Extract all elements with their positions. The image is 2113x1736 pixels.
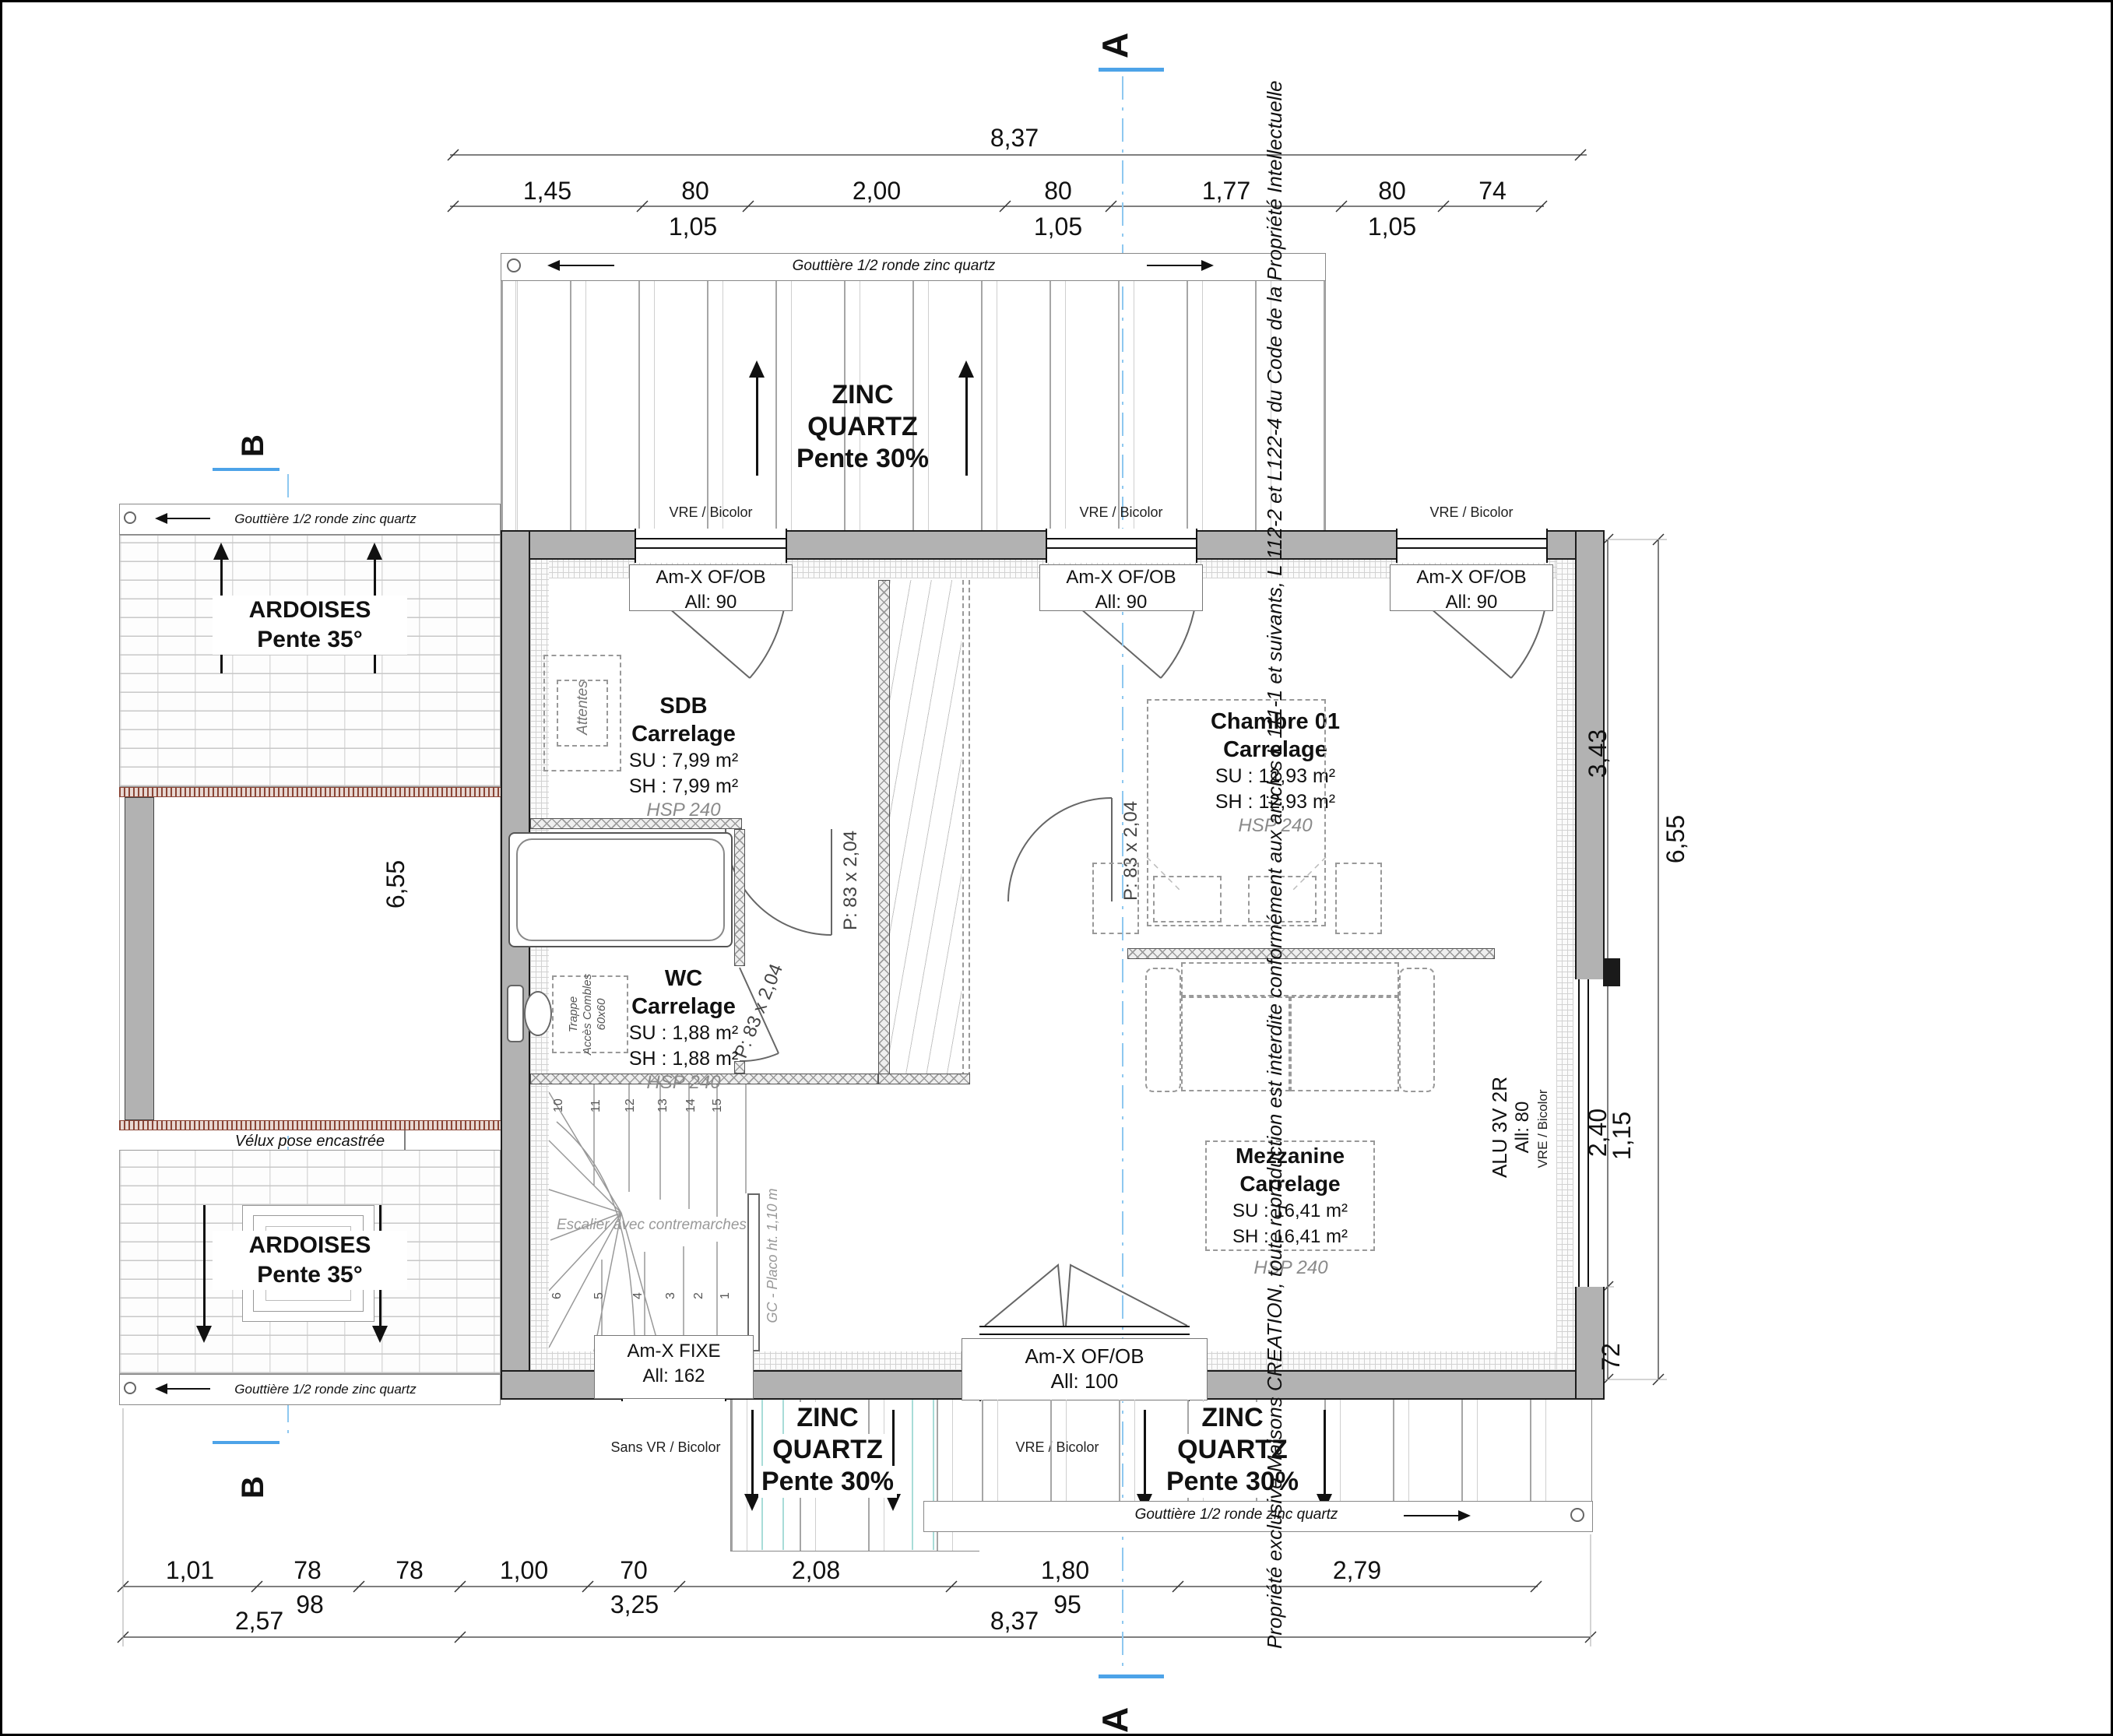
window-north-3-label: Am-X OF/OB All: 90	[1390, 564, 1553, 611]
bl-roof-label-3: Pente 30%	[758, 1466, 897, 1498]
window-north-1-note: VRE / Bicolor	[649, 504, 773, 521]
ardoises-top-label: ARDOISES Pente 35°	[213, 596, 407, 655]
roof-gap-wall-band	[125, 797, 154, 1120]
dim-bot-sub-2: 3,25	[592, 1590, 677, 1619]
window-south-ofob-label: Am-X OF/OB All: 100	[962, 1338, 1208, 1400]
left-gutter-bottom-circle	[124, 1382, 136, 1394]
window-south-ofob-frame1	[979, 1326, 1190, 1327]
window-north-3	[1396, 529, 1548, 563]
top-gutter-endcircle	[507, 258, 521, 272]
window-north-2	[1046, 529, 1197, 563]
dim-bot2-1: 2,57	[213, 1607, 306, 1636]
room-sdb-finish: Carrelage	[598, 720, 769, 748]
closet-east-line	[962, 580, 970, 1084]
toilet-tank	[507, 985, 524, 1042]
window-north-3-note: VRE / Bicolor	[1409, 504, 1534, 521]
section-b-bottom-label: B	[236, 1455, 280, 1499]
bl-roof-label-1: ZINC	[793, 1402, 861, 1434]
room-sdb-sh: SH : 7,99 m²	[598, 774, 769, 799]
top-roof-label: ZINC QUARTZ Pente 30%	[777, 379, 948, 475]
dim-top-sub-3: 1,05	[1349, 213, 1435, 241]
window-north-3-line	[1398, 538, 1546, 539]
sofa-back	[1181, 962, 1399, 996]
attentes-label: Attentes	[575, 649, 593, 766]
window-north-3-sill: All: 90	[1391, 590, 1552, 615]
section-b-bottom-mark	[213, 1441, 280, 1444]
dim-top-1: 1,45	[505, 177, 590, 206]
window-ofob100-type: Am-X OF/OB	[962, 1344, 1207, 1369]
window-north-3-type: Am-X OF/OB	[1391, 565, 1552, 590]
sofa-cushion-right	[1290, 996, 1399, 1091]
nightstand-left	[1092, 863, 1139, 934]
window-north-2-line2	[1047, 547, 1196, 549]
ardoises-bottom-label-1: ARDOISES	[213, 1231, 407, 1260]
ardoises-bottom-arrow1-line	[203, 1205, 206, 1328]
window-north-1	[635, 529, 787, 563]
step-15: 15	[711, 1089, 725, 1112]
closet-shelving	[890, 580, 962, 1084]
window-north-1-line2	[636, 547, 786, 549]
ridge-strip-upper	[119, 787, 501, 797]
step-12: 12	[624, 1089, 638, 1112]
bl-roof-label: ZINC QUARTZ Pente 30%	[742, 1402, 913, 1498]
dim-bot-4: 1,00	[481, 1556, 567, 1585]
dim-right-72: 72	[1597, 1326, 1619, 1388]
section-b-top-label: B	[236, 413, 280, 457]
window-fixe-type: Am-X FIXE	[595, 1339, 753, 1364]
top-roof-label-1: ZINC	[777, 379, 948, 411]
window-ofob100-sill: All: 100	[962, 1369, 1207, 1393]
dim-top-total: 8,37	[968, 124, 1061, 153]
velux-label: Vélux pose encastrée	[181, 1133, 438, 1151]
sofa-arm-right	[1399, 968, 1435, 1092]
ridge-strip-lower	[119, 1120, 501, 1130]
room-wc-sh: SH : 1,88 m²	[598, 1046, 769, 1072]
partition-chambre-south	[1127, 948, 1495, 959]
top-gutter-arrow-right-line	[1147, 265, 1201, 266]
step-13: 13	[656, 1089, 670, 1112]
bed-pillow-left	[1153, 876, 1222, 922]
bottom-gutter-arrow-line	[1404, 1515, 1458, 1516]
section-a-top-label: A	[1094, 12, 1141, 58]
dim-bot-1: 1,01	[147, 1556, 233, 1585]
floor-plan-canvas: A A B B 8,37 1,45 80 2,00 80 1,77 80 74 …	[0, 0, 2113, 1736]
top-gutter-label: Gouttière 1/2 ronde zinc quartz	[742, 258, 1046, 275]
br-roof-arrow1-line	[1144, 1410, 1146, 1495]
step-11: 11	[589, 1089, 603, 1112]
dim-bot-6: 2,08	[773, 1556, 859, 1585]
step-6: 6	[550, 1276, 564, 1299]
stair-gc-label: GC - Placo ht. 1,10 m	[765, 1178, 782, 1334]
bottom-gutter-arrow-icon	[1458, 1510, 1471, 1521]
window-south-ofob-frame2	[979, 1334, 1190, 1335]
bl-roof-label-2: QUARTZ	[769, 1434, 886, 1466]
door-label-sdb: P: 83 x 2,04	[840, 814, 862, 947]
toilet-bowl	[524, 991, 552, 1036]
window-north-1-sill: All: 90	[630, 590, 792, 615]
window-fixe-note: Sans VR / Bicolor	[588, 1439, 744, 1456]
window-north-1-type: Am-X OF/OB	[630, 565, 792, 590]
partition-wc-east	[734, 829, 745, 966]
dim-top-sub-1: 1,05	[650, 213, 736, 241]
room-mezzanine-label: Mezzanine Carrelage SU : 16,41 m² SH : 1…	[1205, 1140, 1375, 1251]
top-gutter-arrow-right-icon	[1201, 260, 1214, 271]
dim-right-115: 1,15	[1608, 1097, 1630, 1175]
section-a-bottom-label: A	[1094, 1686, 1141, 1733]
step-3: 3	[664, 1276, 678, 1299]
room-wc-finish: Carrelage	[598, 993, 769, 1021]
room-mezz-sh: SH : 16,41 m²	[1207, 1224, 1373, 1249]
dim-top-5: 1,77	[1183, 177, 1269, 206]
room-wc-su: SU : 1,88 m²	[598, 1021, 769, 1046]
dim-right-343: 3,43	[1584, 711, 1607, 796]
br-roof-label: ZINC QUARTZ Pente 30%	[1147, 1402, 1318, 1498]
bathtub-inner	[516, 838, 725, 941]
dim-right-240: 2,40	[1584, 1090, 1607, 1175]
room-wc-name: WC	[598, 965, 769, 993]
dim-bot-5: 70	[591, 1556, 677, 1585]
dim-top-6: 80	[1349, 177, 1435, 206]
top-roof-arrow1-icon	[749, 360, 765, 378]
ardoises-roof-top	[119, 535, 501, 787]
ardoises-top-arrow1-icon	[213, 543, 229, 560]
dim-top-2: 80	[652, 177, 738, 206]
dim-top-7: 74	[1450, 177, 1535, 206]
ardoises-top-label-1: ARDOISES	[213, 596, 407, 625]
step-2: 2	[692, 1276, 706, 1299]
room-sdb-label: SDB Carrelage SU : 7,99 m² SH : 7,99 m² …	[598, 692, 769, 821]
partition-closet-south	[878, 1074, 970, 1084]
room-sdb-su: SU : 7,99 m²	[598, 748, 769, 774]
stair-label: Escalier avec contremarches	[557, 1217, 736, 1234]
bottom-gutter-label: Gouttière 1/2 ronde zinc quartz	[1085, 1506, 1388, 1523]
window-north-2-line	[1047, 538, 1196, 539]
window-north-1-label: Am-X OF/OB All: 90	[629, 564, 793, 611]
dim-top-3: 2,00	[834, 177, 919, 206]
room-wc-label: WC Carrelage SU : 1,88 m² SH : 1,88 m² H…	[598, 965, 769, 1094]
window-south-fixe-label: Am-X FIXE All: 162	[594, 1335, 754, 1399]
dim-bot-2: 78	[265, 1556, 350, 1585]
dim-bot2-2: 8,37	[968, 1607, 1061, 1636]
east-wall-post	[1603, 958, 1620, 986]
br-roof-arrow2-line	[1324, 1410, 1326, 1495]
room-mezz-hsp: HSP 240	[1221, 1257, 1361, 1279]
top-roof-label-2: QUARTZ	[777, 411, 948, 443]
step-1: 1	[719, 1276, 733, 1299]
dim-bot-7: 1,80	[1022, 1556, 1108, 1585]
step-14: 14	[684, 1089, 698, 1112]
step-10: 10	[552, 1089, 566, 1112]
dim-top-4: 80	[1015, 177, 1101, 206]
window-east-sill: All: 80	[1510, 1065, 1531, 1190]
left-gutter-top-label: Gouttière 1/2 ronde zinc quartz	[205, 511, 446, 527]
window-east-note: VRE / Bicolor	[1535, 1063, 1552, 1195]
room-sdb-hsp: HSP 240	[598, 799, 769, 821]
dim-left-655: 6,55	[381, 842, 405, 927]
window-east-type: ALU 3V 2R	[1487, 1049, 1510, 1205]
ardoises-bottom-label: ARDOISES Pente 35°	[213, 1231, 407, 1290]
copyright-text: Propriété exclusive Maisons CREATION, to…	[1263, 92, 1289, 1649]
step-4: 4	[631, 1276, 645, 1299]
ardoises-top-label-2: Pente 35°	[213, 625, 407, 655]
dim-right-655: 6,55	[1661, 796, 1685, 882]
trappe-label-2: Accès Combles	[581, 948, 595, 1081]
window-north-2-note: VRE / Bicolor	[1059, 504, 1183, 521]
left-gutter-bottom-arrow-icon	[155, 1383, 167, 1394]
top-roof-arrow1-line	[756, 378, 758, 476]
section-a-top-mark	[1099, 68, 1164, 72]
step-5: 5	[592, 1276, 606, 1299]
window-north-2-sill: All: 90	[1040, 590, 1202, 615]
room-mezz-name: Mezzanine	[1207, 1142, 1373, 1170]
room-sdb-name: SDB	[598, 692, 769, 720]
br-roof-label-1: ZINC	[1198, 1402, 1266, 1434]
dim-bot-8: 2,79	[1314, 1556, 1400, 1585]
section-a-bottom-mark	[1099, 1675, 1164, 1678]
wall-west	[501, 530, 530, 1400]
top-roof-arrow2-icon	[958, 360, 974, 378]
bottom-gutter-circle	[1570, 1508, 1584, 1522]
ardoises-bottom-arrow1-icon	[196, 1326, 212, 1343]
room-mezz-finish: Carrelage	[1207, 1170, 1373, 1198]
window-north-2-label: Am-X OF/OB All: 90	[1039, 564, 1203, 611]
stair-guard-wall	[747, 1193, 760, 1351]
ardoises-bottom-arrow2-icon	[372, 1326, 388, 1343]
top-roof-arrow2-line	[965, 378, 968, 476]
hatch-east	[1556, 560, 1575, 1370]
left-gutter-top-circle	[124, 511, 136, 524]
left-gutter-bottom-arrow-line	[167, 1388, 210, 1390]
window-east-line1	[1578, 979, 1580, 1287]
left-gutter-bottom-label: Gouttière 1/2 ronde zinc quartz	[205, 1382, 446, 1397]
dim-top-sub-2: 1,05	[1015, 213, 1101, 241]
window-north-2-type: Am-X OF/OB	[1040, 565, 1202, 590]
roof-gap-area	[119, 797, 501, 1120]
nightstand-right	[1335, 863, 1382, 934]
window-north-1-line	[636, 538, 786, 539]
left-gutter-top-arrow-line	[167, 518, 210, 519]
sofa-arm-left	[1145, 968, 1181, 1092]
dim-bot-3: 78	[367, 1556, 452, 1585]
section-b-top-mark	[213, 468, 280, 471]
window-north-3-line2	[1398, 547, 1546, 549]
left-gutter-top-arrow-icon	[155, 513, 167, 524]
trappe-label-1: Trappe	[567, 948, 581, 1081]
partition-closet-west	[878, 580, 890, 1084]
top-gutter-arrow-left-icon	[547, 260, 560, 271]
top-gutter-arrow-left-line	[560, 265, 614, 266]
top-roof-label-3: Pente 30%	[777, 443, 948, 475]
ardoises-bottom-label-2: Pente 35°	[213, 1260, 407, 1290]
ardoises-top-arrow2-icon	[367, 543, 382, 560]
room-mezz-su: SU : 16,41 m²	[1207, 1198, 1373, 1224]
window-fixe-sill: All: 162	[595, 1364, 753, 1389]
